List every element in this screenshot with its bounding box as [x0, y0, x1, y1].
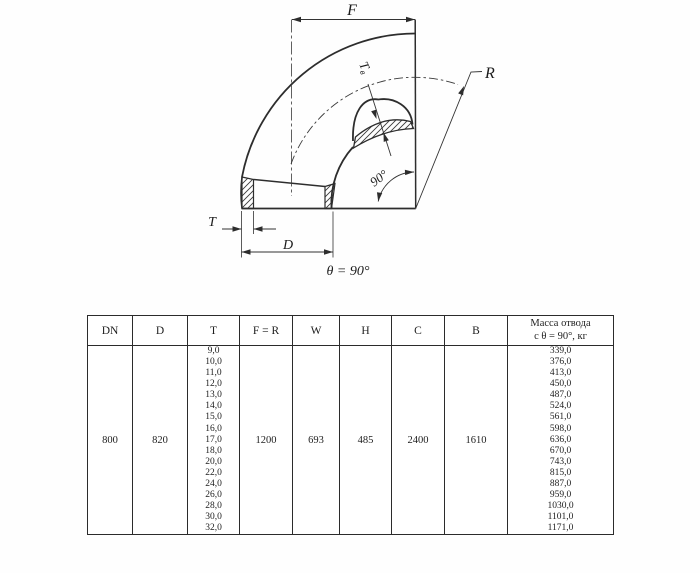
- col-header-c: C: [392, 316, 445, 345]
- cell-t-values: 9,010,011,012,013,014,015,016,017,018,02…: [188, 346, 240, 534]
- col-header-mass-line1: Масса отвода: [530, 318, 590, 331]
- t-arrow-right: [254, 226, 263, 231]
- table-cell-value: 1171,0: [548, 523, 574, 534]
- table-cell-value: 30,0: [205, 512, 222, 523]
- table-cell-value: 743,0: [550, 457, 571, 468]
- f-label: F: [346, 2, 357, 19]
- col-header-b: B: [445, 316, 508, 345]
- table-cell-value: 487,0: [550, 390, 571, 401]
- table-cell-value: 561,0: [550, 412, 571, 423]
- face-top-edge: [254, 180, 326, 187]
- table-cell-value: 670,0: [550, 446, 571, 457]
- outer-arc: [242, 34, 415, 178]
- angle-arrow-top: [405, 169, 414, 175]
- table-cell-value: 15,0: [205, 412, 222, 423]
- col-header-f-r: F = R: [240, 316, 293, 345]
- table-cell-value: 887,0: [550, 479, 571, 490]
- cell-w: 693: [293, 346, 340, 534]
- col-header-dn: DN: [88, 316, 133, 345]
- cell-c: 2400: [392, 346, 445, 534]
- table-cell-value: 20,0: [205, 457, 222, 468]
- table-cell-value: 9,0: [208, 346, 220, 357]
- table-cell-value: 959,0: [550, 490, 571, 501]
- table-cell-value: 17,0: [205, 435, 222, 446]
- table-cell-value: 339,0: [550, 346, 571, 357]
- cell-b: 1610: [445, 346, 508, 534]
- col-header-t: T: [188, 316, 240, 345]
- table-cell-value: 18,0: [205, 446, 222, 457]
- cell-h: 485: [340, 346, 392, 534]
- col-header-h: H: [340, 316, 392, 345]
- f-arrow-left: [292, 17, 301, 22]
- table-cell-value: 636,0: [550, 435, 571, 446]
- table-cell-value: 22,0: [205, 468, 222, 479]
- col-header-d: D: [133, 316, 188, 345]
- table-cell-value: 11,0: [205, 368, 221, 379]
- table-cell-value: 598,0: [550, 424, 571, 435]
- d-label: D: [282, 238, 293, 253]
- table-cell-value: 24,0: [205, 479, 222, 490]
- table-cell-value: 12,0: [205, 379, 222, 390]
- r-label: R: [484, 65, 495, 82]
- table-cell-value: 14,0: [205, 401, 222, 412]
- table-cell-value: 13,0: [205, 390, 222, 401]
- table-cell-value: 413,0: [550, 368, 571, 379]
- col-header-w: W: [293, 316, 340, 345]
- cell-d: 820: [133, 346, 188, 534]
- theta-note: θ = 90°: [327, 264, 370, 279]
- table-header-row: DN D T F = R W H C B Масса отвода с θ = …: [88, 316, 613, 346]
- angle-label: 90°: [367, 167, 391, 190]
- table-cell-value: 32,0: [205, 523, 222, 534]
- dimensions-table: DN D T F = R W H C B Масса отвода с θ = …: [87, 315, 614, 535]
- angle-arrow-bottom: [376, 192, 383, 202]
- inner-arc: [331, 147, 353, 209]
- table-cell-value: 28,0: [205, 501, 222, 512]
- elbow-drawing-svg: F T D 90° R Tв: [0, 0, 700, 310]
- table-cell-value: 26,0: [205, 490, 222, 501]
- t-arrow-left: [233, 226, 242, 231]
- tb-dimension-line: [368, 84, 391, 156]
- col-header-mass-line2: с θ = 90°, кг: [534, 331, 587, 344]
- table-cell-value: 1101,0: [548, 512, 574, 523]
- d-arrow-left: [242, 249, 251, 254]
- table-cell-value: 10,0: [205, 357, 222, 368]
- table-cell-value: 450,0: [550, 379, 571, 390]
- centerline-arc: [291, 77, 458, 164]
- table-cell-value: 524,0: [550, 401, 571, 412]
- table-cell-value: 376,0: [550, 357, 571, 368]
- right-edge: [415, 20, 416, 209]
- t-label: T: [208, 215, 217, 230]
- cell-f-r: 1200: [240, 346, 293, 534]
- table-cell-value: 1030,0: [547, 501, 573, 512]
- cell-mass-values: 339,0376,0413,0450,0487,0524,0561,0598,0…: [508, 346, 613, 534]
- table-cell-value: 16,0: [205, 424, 222, 435]
- table-cell-value: 815,0: [550, 468, 571, 479]
- cell-dn: 800: [88, 346, 133, 534]
- page: F T D 90° R Tв: [0, 0, 700, 573]
- elbow-drawing: F T D 90° R Tв: [0, 0, 700, 310]
- col-header-mass: Масса отвода с θ = 90°, кг: [508, 316, 613, 345]
- table-body-row: 800 820 9,010,011,012,013,014,015,016,01…: [88, 346, 613, 534]
- tb-label: Tв: [355, 59, 375, 76]
- d-arrow-right: [324, 249, 333, 254]
- wall-section-outer: [242, 177, 254, 209]
- r-leader-line: [416, 72, 482, 209]
- f-arrow-right: [406, 17, 415, 22]
